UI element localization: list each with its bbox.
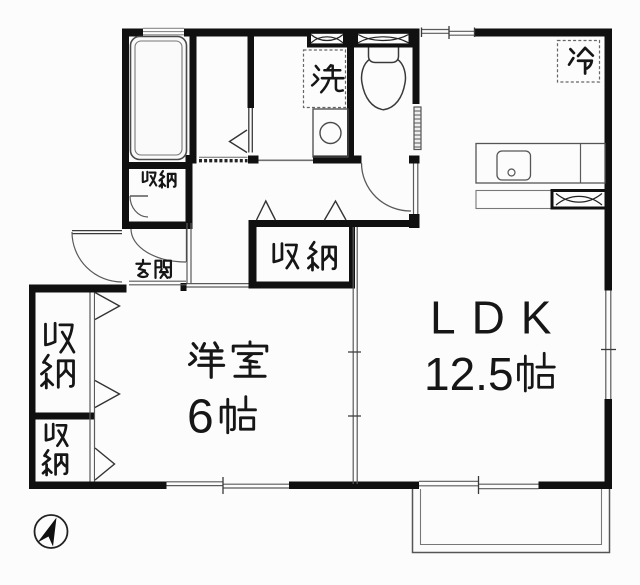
svg-text:12.5: 12.5 [424, 348, 514, 400]
svg-text:6: 6 [187, 391, 214, 444]
svg-text:LDK: LDK [430, 292, 567, 344]
